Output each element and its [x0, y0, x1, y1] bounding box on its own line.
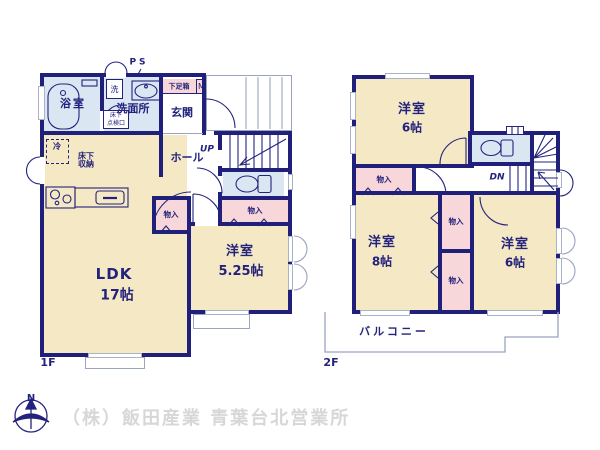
room-bedroom-west — [352, 191, 442, 314]
wall — [222, 168, 292, 172]
label-closet-mid-upper: 物入 — [449, 218, 464, 226]
label-bedroom-west-size: 8帖 — [372, 256, 392, 269]
window — [288, 236, 293, 262]
label-closet-west: 物入 — [164, 211, 179, 219]
window — [385, 73, 430, 79]
wall — [159, 131, 163, 177]
label-closet-north: 物入 — [377, 176, 392, 184]
entrance-porch-outline — [206, 75, 292, 131]
wall — [222, 222, 292, 226]
wall — [100, 77, 104, 111]
wall — [193, 222, 195, 226]
window — [38, 86, 45, 120]
label-washroom: 洗面所 — [117, 103, 150, 115]
floorplan-canvas: M — [0, 0, 600, 450]
wall — [40, 131, 163, 135]
door-gap — [218, 150, 223, 166]
label-bath: 浴室 — [60, 98, 86, 110]
label-bedroom-north-size: 6帖 — [402, 122, 422, 135]
label-floor2: 2F — [323, 357, 338, 369]
door-gap — [556, 172, 562, 188]
access-hatch-line2: 点検口 — [107, 120, 125, 127]
room-toilet2 — [468, 131, 534, 166]
label-shoebox: 下足箱 — [169, 83, 190, 90]
bedroom1-door-arc — [193, 194, 221, 222]
window — [487, 310, 543, 316]
wall — [159, 73, 163, 131]
room-bedroom-east — [470, 191, 560, 314]
backdoor-arc — [105, 62, 127, 73]
ufs-line2: 収納 — [78, 160, 94, 169]
label-bedroom-west-name: 洋室 — [368, 236, 396, 250]
label-ldk-name: LDK — [96, 267, 133, 283]
label-ldk-size: 17帖 — [100, 289, 133, 304]
label-bedroom1-size: 5.25帖 — [218, 265, 263, 279]
wall — [152, 230, 191, 234]
window — [350, 126, 356, 154]
room-ldk-fill — [44, 135, 187, 353]
wall — [152, 196, 191, 200]
ldk-side-door-arc — [27, 157, 40, 184]
label-bedroom-north-name: 洋室 — [398, 103, 426, 117]
label-fridge: 冷 — [53, 143, 61, 151]
compass-north-label: N — [27, 394, 35, 405]
window — [556, 228, 562, 254]
window — [350, 205, 356, 239]
label-closet-mid-lower: 物入 — [449, 277, 464, 285]
window — [88, 353, 142, 358]
entrance-step-line — [163, 133, 203, 134]
wall — [187, 230, 191, 357]
bay-window-outline — [85, 357, 145, 369]
label-bedroom-east-name: 洋室 — [501, 238, 529, 252]
washer-box: 洗 — [106, 79, 123, 99]
company-watermark: （株）飯田産業 青葉台北営業所 — [62, 404, 350, 430]
casement-window-icon — [294, 236, 307, 290]
label-balcony: バルコニー — [359, 326, 429, 338]
terrace-outline — [193, 314, 250, 329]
label-bedroom1-name: 洋室 — [226, 245, 254, 259]
stairs-up-icon — [230, 135, 286, 168]
door-gap — [218, 176, 223, 192]
window — [556, 258, 562, 284]
window — [205, 310, 249, 315]
pipe-space-icon — [506, 126, 524, 135]
wall — [214, 131, 292, 135]
label-ps: PS — [129, 58, 148, 67]
label-up: UP — [200, 145, 214, 154]
washer-label: 洗 — [111, 84, 119, 95]
window — [360, 310, 410, 316]
label-hall: ホール — [171, 152, 204, 164]
label-entrance: 玄関 — [171, 107, 193, 119]
window — [288, 174, 293, 190]
window — [288, 264, 293, 290]
label-dn: DN — [489, 173, 504, 182]
window — [350, 92, 356, 120]
label-floor1: 1F — [40, 357, 55, 369]
room-toilet1-fill — [222, 172, 284, 196]
wall — [187, 196, 191, 230]
casement-window-icon — [562, 228, 575, 284]
wall — [152, 196, 156, 234]
label-closet-hall: 物入 — [248, 207, 263, 215]
door-gap — [40, 157, 45, 184]
wall — [222, 196, 292, 200]
door-gap — [106, 73, 126, 78]
label-underfloor-storage: 床下 収納 — [78, 153, 94, 170]
label-bedroom-east-size: 6帖 — [505, 257, 525, 270]
